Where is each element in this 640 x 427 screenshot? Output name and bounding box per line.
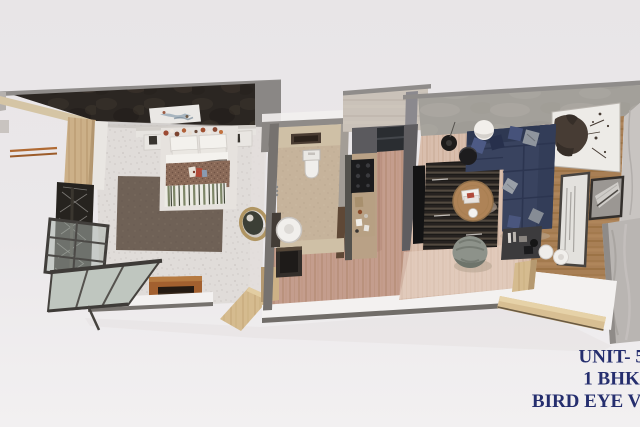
svg-text:BIRD EYE V: BIRD EYE V [532,391,640,412]
svg-text:1 BHK: 1 BHK [583,369,640,390]
svg-text:UNIT- 5: UNIT- 5 [579,347,640,368]
